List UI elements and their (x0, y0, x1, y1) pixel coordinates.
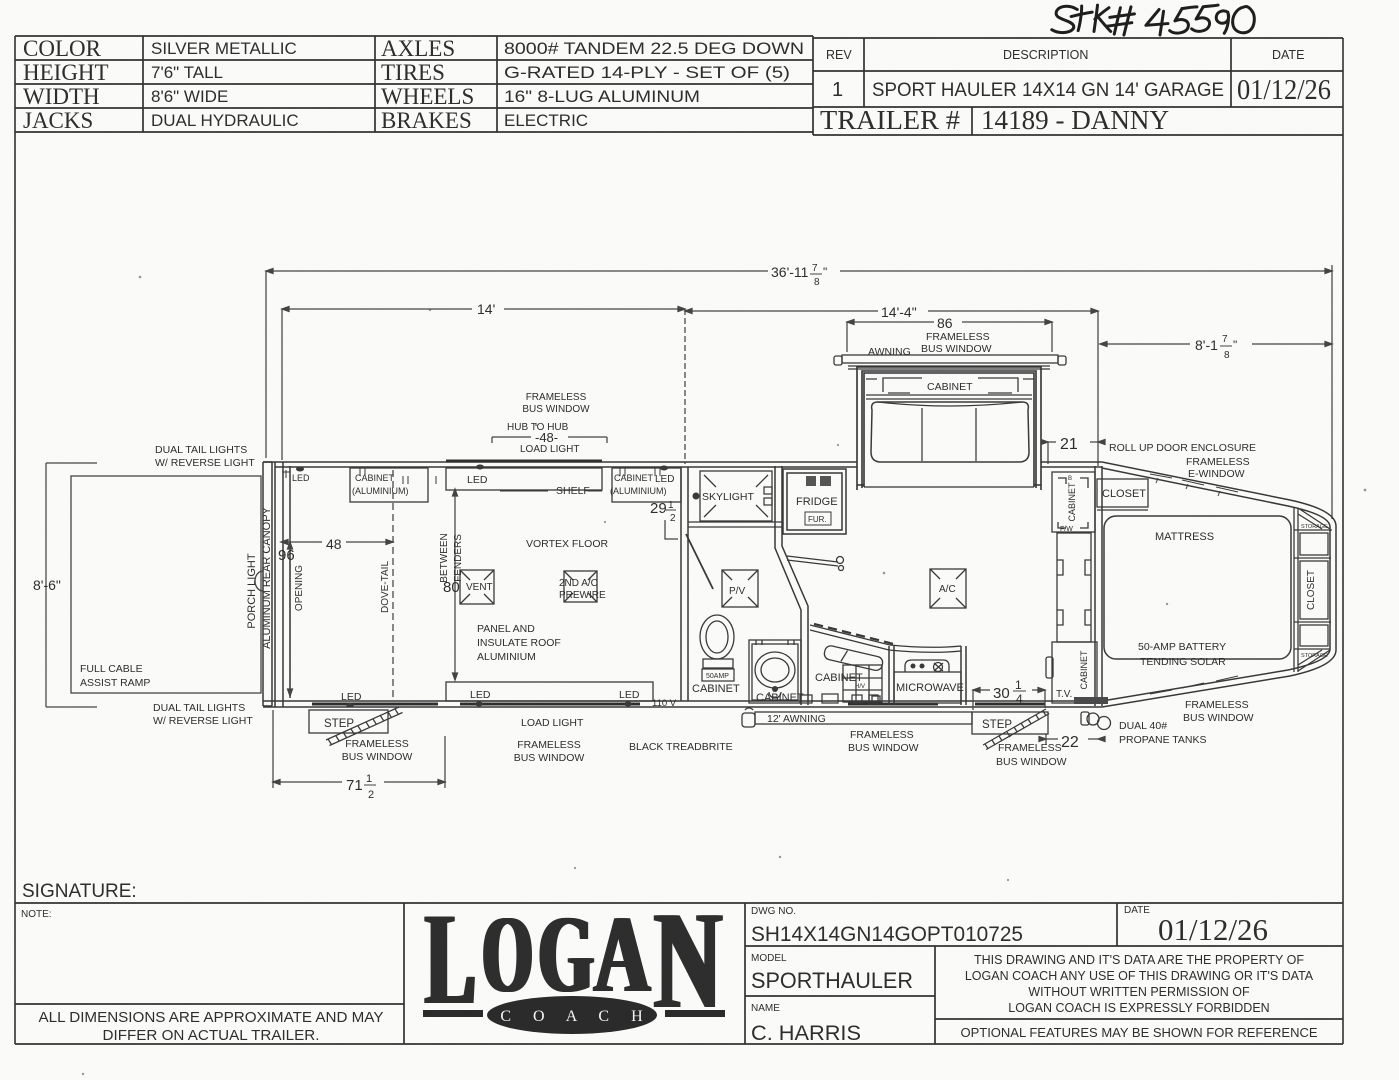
svg-text:NOTE:: NOTE: (21, 909, 52, 920)
svg-text:DUAL TAIL LIGHTS: DUAL TAIL LIGHTS (155, 444, 247, 456)
svg-text:SIGNATURE:: SIGNATURE: (22, 881, 137, 902)
svg-text:8000# TANDEM 22.5 DEG DOWN: 8000# TANDEM 22.5 DEG DOWN (504, 39, 804, 58)
svg-text:O: O (485, 893, 535, 1015)
svg-text:WIDTH: WIDTH (23, 84, 100, 109)
svg-text:DWG NO.: DWG NO. (751, 906, 796, 917)
svg-text:P/V: P/V (729, 586, 745, 597)
svg-text:ALUMINIUM: ALUMINIUM (477, 651, 536, 663)
svg-text:TIRES: TIRES (381, 60, 445, 85)
svg-text:14': 14' (477, 301, 495, 317)
svg-text:LED: LED (467, 474, 488, 486)
svg-text:H/V: H/V (855, 684, 865, 690)
svg-text:71: 71 (346, 777, 363, 794)
svg-text:VENT: VENT (466, 582, 493, 593)
svg-text:2: 2 (670, 513, 676, 524)
svg-text:BETWEEN: BETWEEN (439, 533, 450, 582)
svg-text:FRAMELESS: FRAMELESS (850, 729, 914, 741)
svg-text:BUS WINDOW: BUS WINDOW (996, 756, 1067, 768)
svg-text:LED: LED (292, 473, 310, 483)
svg-text:CABINET: CABINET (756, 692, 804, 704)
svg-text:G-RATED 14-PLY - SET OF (5): G-RATED 14-PLY - SET OF (5) (504, 63, 790, 82)
svg-text:FULL CABLE: FULL CABLE (80, 663, 143, 675)
svg-text:8'-1: 8'-1 (1195, 337, 1218, 353)
svg-text:DATE: DATE (1124, 905, 1150, 916)
svg-text:TENDING SOLAR: TENDING SOLAR (1140, 656, 1226, 668)
svg-text:LED: LED (341, 691, 362, 703)
svg-text:F/W: F/W (1060, 526, 1073, 533)
svg-text:CABINET: CABINET (692, 683, 740, 695)
svg-text:LED: LED (619, 689, 640, 701)
svg-text:HEIGHT: HEIGHT (23, 60, 109, 85)
svg-text:STEP: STEP (324, 718, 354, 730)
svg-text:14'-4": 14'-4" (881, 304, 917, 320)
svg-text:SH14X14GN14GOPT010725: SH14X14GN14GOPT010725 (751, 922, 1023, 946)
svg-text:FRAMELESS: FRAMELESS (517, 739, 581, 751)
svg-text:STORAGE: STORAGE (1301, 653, 1328, 659)
svg-text:FENDERS: FENDERS (453, 534, 464, 582)
svg-text:B: B (1068, 476, 1072, 482)
svg-text:1: 1 (366, 773, 372, 785)
svg-text:12' AWNING: 12' AWNING (767, 713, 826, 725)
svg-text:14189 - DANNY: 14189 - DANNY (981, 105, 1169, 135)
svg-text:WITHOUT WRITTEN PERMISSION OF: WITHOUT WRITTEN PERMISSION OF (1028, 985, 1250, 999)
svg-text:21: 21 (1060, 436, 1078, 453)
svg-text:PORCH LIGHT: PORCH LIGHT (246, 553, 258, 628)
svg-text:ELECTRIC: ELECTRIC (504, 111, 588, 130)
svg-text:CABINET: CABINET (1079, 650, 1089, 690)
svg-text:AXLES: AXLES (381, 36, 455, 61)
svg-text:(ALUMINIUM): (ALUMINIUM) (352, 486, 409, 496)
svg-text:CABINET: CABINET (815, 672, 863, 684)
svg-text:SKYLIGHT: SKYLIGHT (702, 491, 755, 503)
svg-text:22: 22 (1061, 734, 1079, 751)
svg-text:DESCRIPTION: DESCRIPTION (1003, 48, 1088, 62)
svg-text:2: 2 (368, 789, 374, 801)
svg-text:SPORT HAULER 14X14 GN 14' GARA: SPORT HAULER 14X14 GN 14' GARAGE (872, 79, 1224, 101)
svg-text:FRAMELESS: FRAMELESS (1186, 456, 1250, 468)
svg-text:CABINET: CABINET (355, 473, 395, 483)
svg-text:1: 1 (832, 79, 843, 101)
svg-text:LOGAN COACH IS EXPRESSLY FORBI: LOGAN COACH IS EXPRESSLY FORBIDDEN (1008, 1001, 1269, 1015)
svg-text:L: L (428, 885, 478, 1032)
svg-text:8: 8 (1224, 350, 1230, 361)
svg-text:C O A C H: C O A C H (500, 1008, 651, 1025)
svg-text:FRAMELESS: FRAMELESS (926, 331, 990, 343)
svg-text:COLOR: COLOR (23, 36, 102, 61)
svg-text:BUS WINDOW: BUS WINDOW (342, 751, 413, 763)
svg-text:ROLL UP DOOR ENCLOSURE: ROLL UP DOOR ENCLOSURE (1109, 442, 1256, 454)
svg-text:WHEELS: WHEELS (381, 84, 474, 109)
svg-text:01/12/26: 01/12/26 (1237, 75, 1331, 106)
svg-text:VORTEX FLOOR: VORTEX FLOOR (526, 538, 608, 550)
svg-text:1: 1 (668, 500, 674, 511)
svg-text:8: 8 (814, 277, 820, 288)
svg-text:": " (823, 265, 827, 279)
svg-text:4: 4 (1016, 692, 1023, 706)
svg-text:8'-6": 8'-6" (33, 577, 61, 593)
svg-text:OPENING: OPENING (294, 565, 305, 611)
svg-text:BUS WINDOW: BUS WINDOW (514, 752, 585, 764)
svg-text:LOAD LIGHT: LOAD LIGHT (521, 717, 584, 729)
svg-text:PREWIRE: PREWIRE (559, 590, 606, 601)
svg-text:(ALUMINIUM): (ALUMINIUM) (610, 486, 667, 496)
svg-text:ASSIST RAMP: ASSIST RAMP (80, 677, 150, 689)
svg-text:DUAL HYDRAULIC: DUAL HYDRAULIC (151, 111, 299, 130)
svg-text:TRAILER #: TRAILER # (820, 105, 961, 135)
svg-text:ALL DIMENSIONS ARE APPROXIMATE: ALL DIMENSIONS ARE APPROXIMATE AND MAY (39, 1009, 384, 1026)
svg-text:86: 86 (937, 315, 953, 331)
svg-text:AWNING: AWNING (868, 346, 911, 358)
svg-text:T.V.: T.V. (1056, 689, 1072, 700)
svg-text:SILVER METALLIC: SILVER METALLIC (151, 39, 297, 58)
svg-text:CABINET: CABINET (927, 381, 973, 393)
svg-text:FRAMELESS: FRAMELESS (1185, 699, 1249, 711)
svg-text:E-WINDOW: E-WINDOW (1188, 468, 1245, 480)
svg-text:NAME: NAME (751, 1003, 780, 1014)
svg-text:CLOSET: CLOSET (1306, 570, 1317, 610)
svg-text:50-AMP BATTERY: 50-AMP BATTERY (1138, 641, 1226, 653)
svg-text:FRAMELESS: FRAMELESS (345, 738, 409, 750)
svg-text:BRAKES: BRAKES (381, 108, 472, 133)
svg-text:FUR.: FUR. (808, 515, 827, 524)
svg-text:BUS WINDOW: BUS WINDOW (848, 742, 919, 754)
svg-text:STORAGE: STORAGE (1301, 524, 1328, 530)
svg-text:DIFFER ON ACTUAL TRAILER.: DIFFER ON ACTUAL TRAILER. (103, 1027, 320, 1044)
svg-text:7'6" TALL: 7'6" TALL (151, 63, 223, 82)
svg-text:36'-11: 36'-11 (771, 264, 809, 280)
svg-text:JACKS: JACKS (23, 108, 93, 133)
svg-text:96: 96 (278, 547, 295, 564)
svg-text:MICROWAVE: MICROWAVE (896, 682, 964, 694)
svg-text:CLOSET: CLOSET (1102, 488, 1146, 500)
svg-text:SHELF: SHELF (556, 485, 590, 497)
svg-text:": " (1233, 338, 1237, 352)
svg-text:1: 1 (1015, 678, 1022, 692)
svg-text:PANEL AND: PANEL AND (477, 623, 535, 635)
svg-text:LOAD LIGHT: LOAD LIGHT (520, 444, 579, 455)
svg-text:7: 7 (1222, 334, 1228, 345)
svg-text:INSULATE ROOF: INSULATE ROOF (477, 637, 561, 649)
svg-text:MATTRESS: MATTRESS (1155, 531, 1214, 543)
svg-text:29: 29 (650, 500, 667, 517)
svg-text:BUS WINDOW: BUS WINDOW (1183, 712, 1254, 724)
svg-text:MODEL: MODEL (751, 953, 787, 964)
svg-text:C. HARRIS: C. HARRIS (751, 1021, 861, 1045)
svg-text:16" 8-LUG ALUMINUM: 16" 8-LUG ALUMINUM (504, 87, 700, 106)
svg-text:REV: REV (826, 48, 852, 62)
svg-text:STEP: STEP (982, 719, 1012, 731)
svg-text:7: 7 (812, 263, 818, 274)
svg-text:DUAL TAIL LIGHTS: DUAL TAIL LIGHTS (153, 702, 245, 714)
svg-text:FRIDGE: FRIDGE (796, 496, 838, 508)
svg-text:W/ REVERSE LIGHT: W/ REVERSE LIGHT (155, 457, 255, 469)
svg-text:PROPANE TANKS: PROPANE TANKS (1119, 734, 1207, 746)
svg-text:110 V: 110 V (652, 698, 677, 709)
svg-text:A/C: A/C (939, 584, 956, 595)
svg-text:BUS WINDOW: BUS WINDOW (921, 343, 992, 355)
svg-text:CABINET: CABINET (1067, 482, 1077, 522)
svg-text:THIS DRAWING AND IT'S DATA ARE: THIS DRAWING AND IT'S DATA ARE THE PROPE… (974, 953, 1304, 967)
svg-text:LED: LED (655, 474, 674, 485)
svg-text:8'6" WIDE: 8'6" WIDE (151, 87, 228, 106)
svg-text:LOGAN COACH ANY USE OF THIS DR: LOGAN COACH ANY USE OF THIS DRAWING OR I… (965, 969, 1314, 983)
svg-text:-48-: -48- (535, 430, 558, 445)
svg-text:48: 48 (326, 536, 342, 552)
svg-text:SPORTHAULER: SPORTHAULER (751, 968, 913, 993)
svg-text:LED: LED (470, 689, 491, 701)
svg-text:FRAMELESS: FRAMELESS (998, 742, 1062, 754)
svg-text:FRAMELESS: FRAMELESS (526, 392, 587, 403)
svg-text:A: A (597, 893, 652, 1015)
svg-text:BUS WINDOW: BUS WINDOW (522, 404, 590, 415)
svg-text:01/12/26: 01/12/26 (1158, 912, 1268, 947)
svg-text:50AMP: 50AMP (706, 673, 729, 680)
svg-text:DOVE-TAIL: DOVE-TAIL (380, 561, 391, 613)
svg-text:80: 80 (443, 579, 460, 596)
svg-text:OPTIONAL FEATURES MAY BE SHOWN: OPTIONAL FEATURES MAY BE SHOWN FOR REFER… (960, 1025, 1317, 1040)
svg-text:DATE: DATE (1272, 48, 1304, 62)
svg-text:W/ REVERSE LIGHT: W/ REVERSE LIGHT (153, 715, 253, 727)
svg-text:DUAL 40#: DUAL 40# (1119, 720, 1167, 732)
svg-text:2ND A/C: 2ND A/C (559, 578, 598, 589)
svg-text:30: 30 (993, 685, 1010, 702)
svg-text:BLACK TREADBRITE: BLACK TREADBRITE (629, 741, 733, 753)
